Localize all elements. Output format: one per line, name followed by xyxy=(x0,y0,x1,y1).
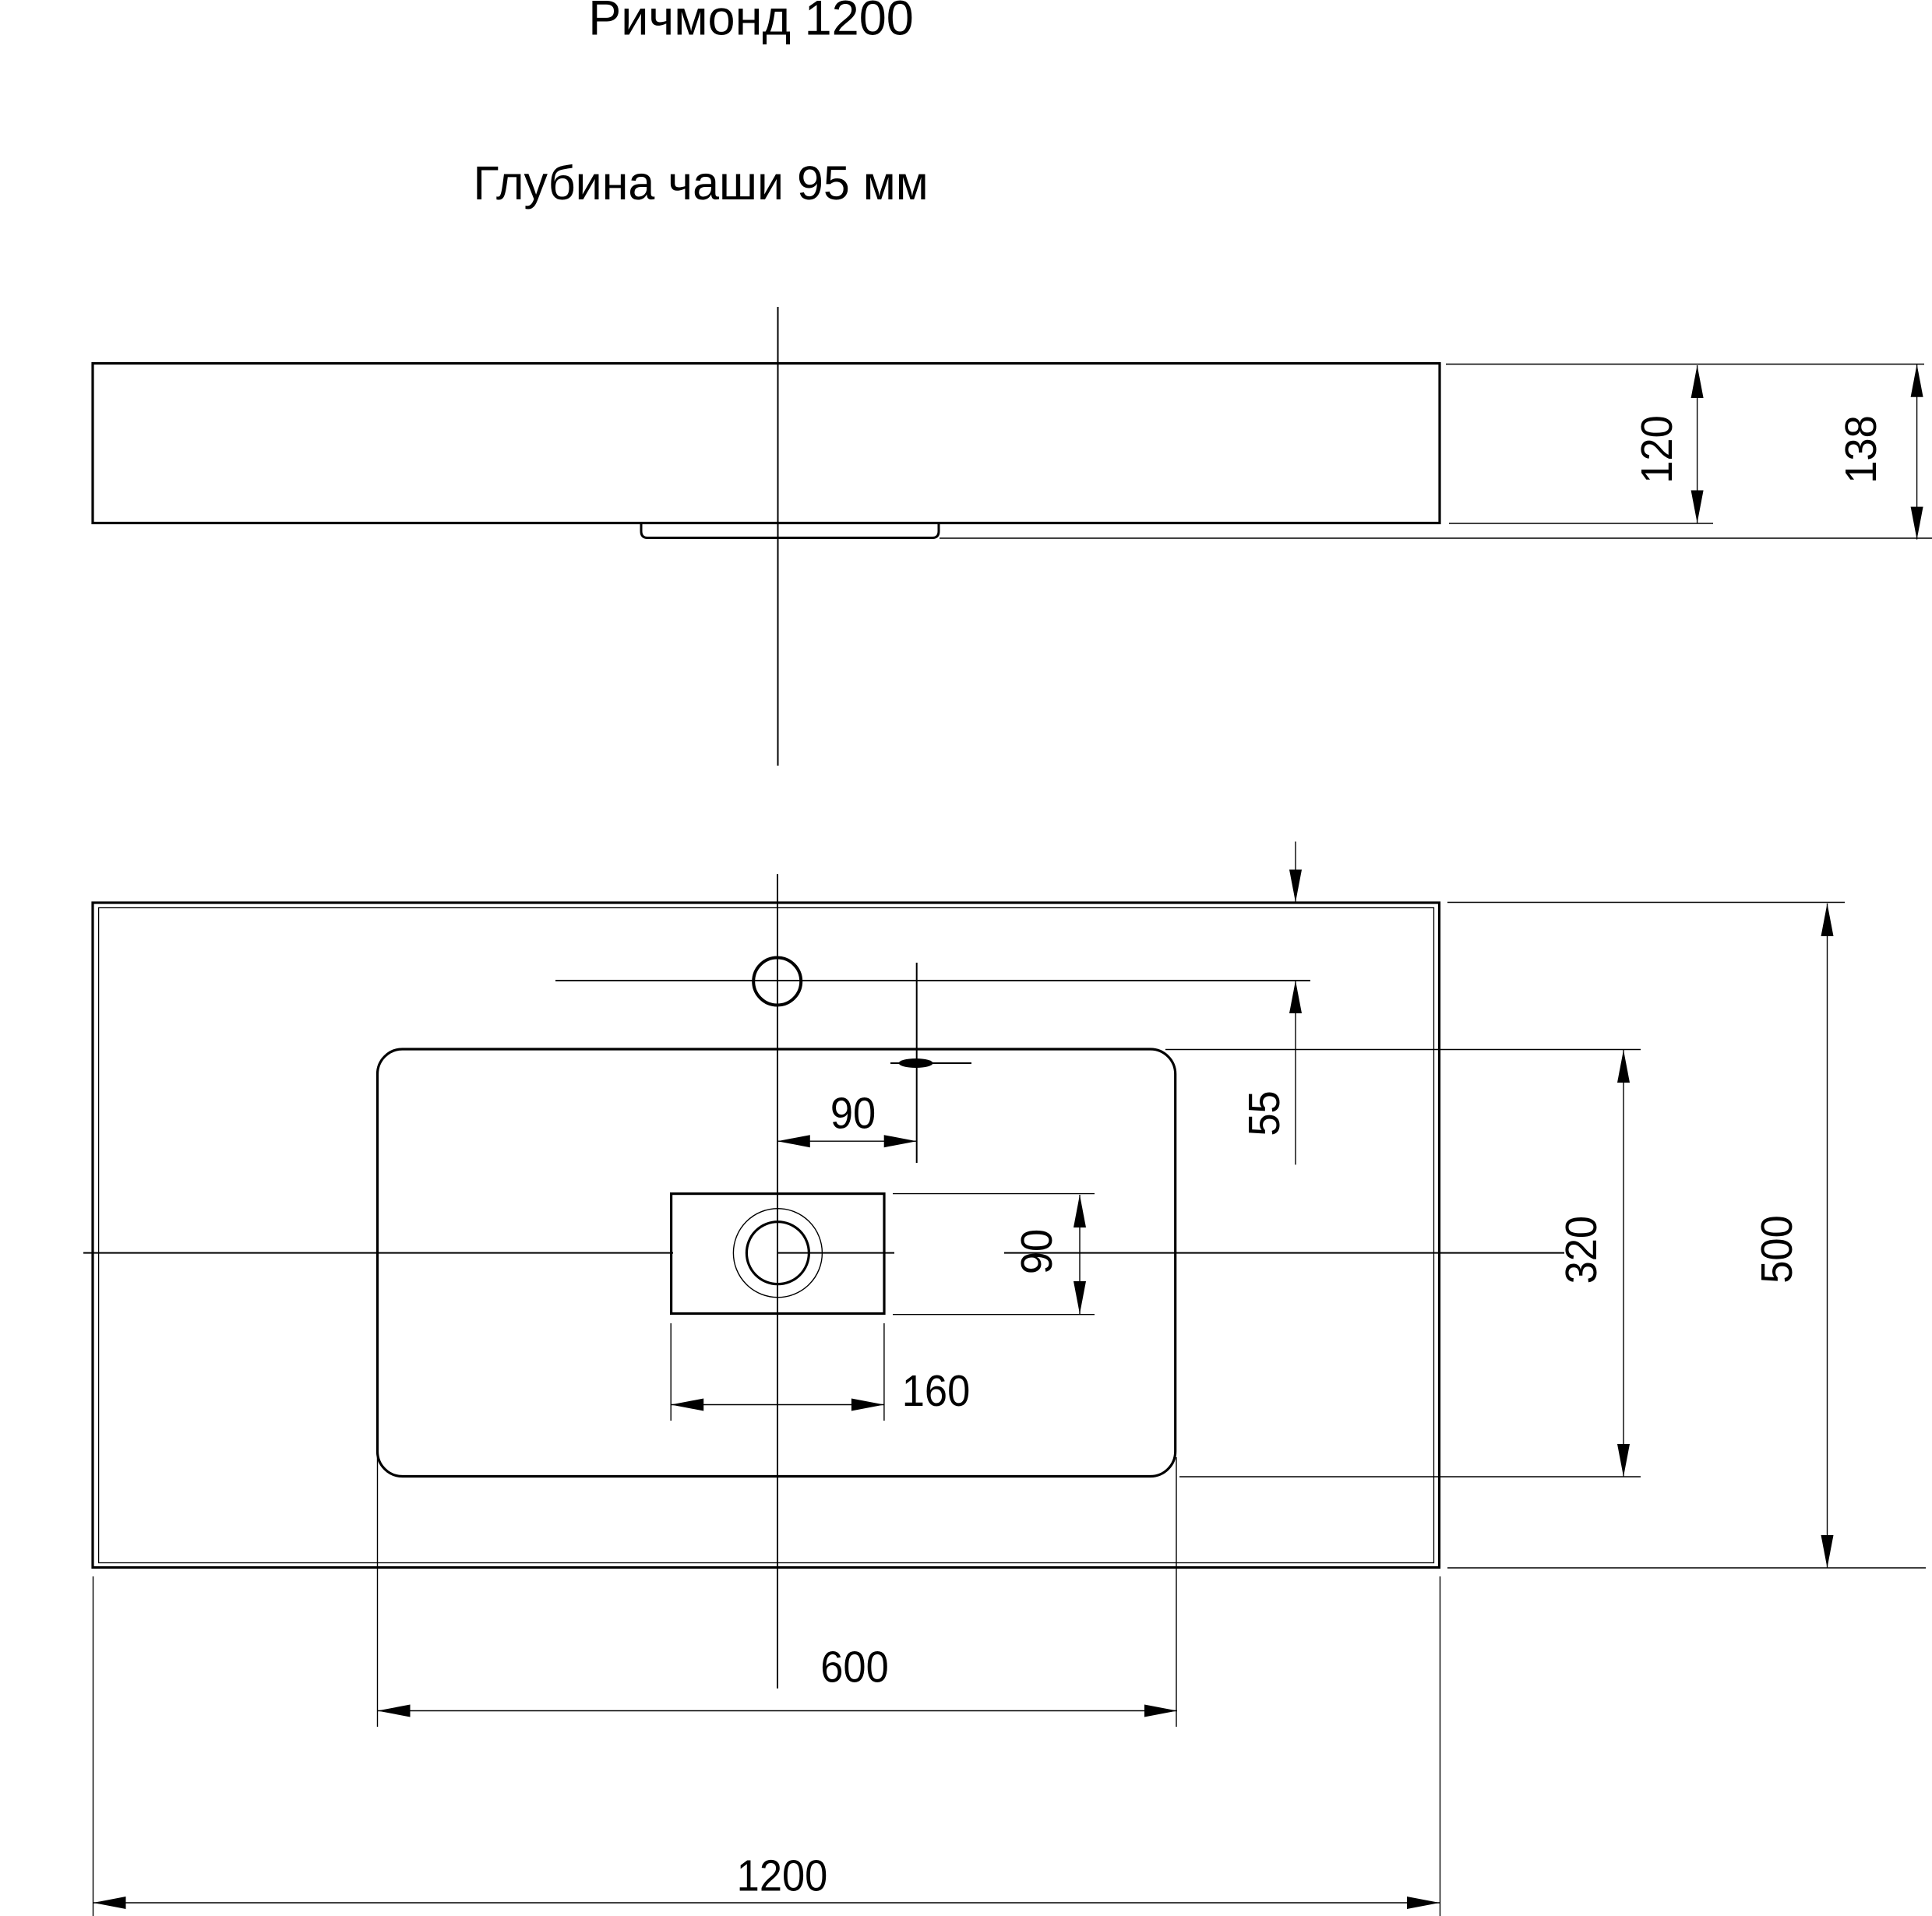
svg-text:138: 138 xyxy=(1835,415,1886,483)
svg-text:500: 500 xyxy=(1751,1215,1802,1283)
svg-text:320: 320 xyxy=(1556,1216,1606,1284)
svg-text:600: 600 xyxy=(820,1641,888,1692)
svg-text:90: 90 xyxy=(830,1087,876,1138)
svg-text:120: 120 xyxy=(1631,415,1682,483)
svg-text:90: 90 xyxy=(1011,1229,1062,1274)
svg-text:55: 55 xyxy=(1239,1090,1289,1136)
svg-text:Ричмонд 1200: Ричмонд 1200 xyxy=(588,0,914,46)
svg-text:1200: 1200 xyxy=(737,1850,828,1900)
svg-text:Глубина чаши 95 мм: Глубина чаши 95 мм xyxy=(473,157,928,210)
svg-text:160: 160 xyxy=(902,1365,970,1416)
